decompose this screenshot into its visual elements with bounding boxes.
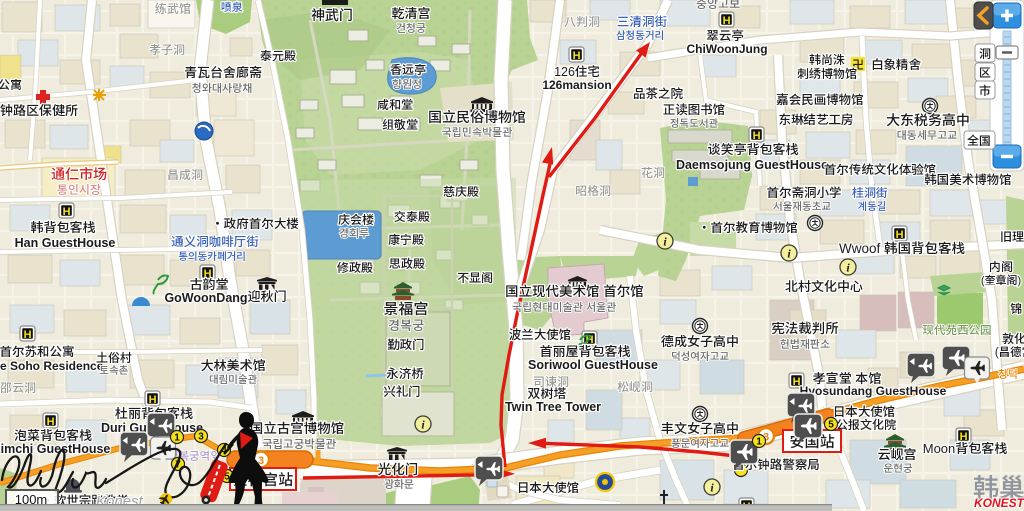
svg-text:e Soho Residence: e Soho Residence	[0, 359, 104, 373]
svg-text:韩背包客栈: 韩背包客栈	[30, 217, 95, 236]
svg-text:중앙고보: 중앙고보	[696, 0, 740, 12]
svg-text:刺绣博物馆: 刺绣博物馆	[797, 65, 857, 82]
svg-text:韩国美术博物馆: 韩国美术博物馆	[924, 169, 1012, 188]
svg-text:KONEST: KONEST	[974, 496, 1024, 510]
svg-text:Moon背包客栈: Moon背包客栈	[923, 438, 1008, 457]
svg-text:波兰大使馆: 波兰大使馆	[509, 324, 572, 343]
svg-text:(奎章阁): (奎章阁)	[981, 272, 1021, 288]
svg-text:청와대사랑채: 청와대사랑채	[192, 80, 253, 96]
svg-text:昌成洞: 昌成洞	[167, 166, 203, 183]
svg-text:계동길: 계동길	[858, 199, 887, 214]
svg-text:咸和堂: 咸和堂	[377, 96, 413, 113]
svg-text:德成女子高中: 德成女子高中	[661, 331, 739, 350]
svg-text:洞: 洞	[979, 45, 991, 62]
svg-text:GoWoonDang: GoWoonDang	[164, 291, 247, 305]
svg-text:日本大使馆: 日本大使馆	[517, 477, 580, 496]
svg-text:5: 5	[828, 420, 834, 431]
svg-text:(昌德宫: (昌德宫	[995, 344, 1024, 360]
svg-text:不显阁: 不显阁	[457, 269, 493, 286]
svg-text:八判洞: 八判洞	[564, 13, 600, 30]
svg-text:国立现代美术馆 首尔馆: 国立现代美术馆 首尔馆	[505, 280, 644, 300]
svg-text:邵云洞: 邵云洞	[0, 379, 36, 396]
svg-text:Han GuestHouse: Han GuestHouse	[15, 236, 116, 250]
svg-text:국립고궁박물관: 국립고궁박물관	[262, 436, 336, 452]
svg-text:思政殿: 思政殿	[389, 255, 426, 272]
svg-text:·政府首尔大楼: ·政府首尔大楼	[211, 213, 299, 232]
svg-text:3: 3	[198, 432, 204, 443]
svg-text:宪法裁判所: 宪法裁判所	[771, 317, 839, 337]
svg-text:126mansion: 126mansion	[542, 78, 611, 92]
svg-text:丰文女子高中: 丰文女子高中	[661, 418, 739, 437]
svg-text:白象精舍: 白象精舍	[871, 54, 922, 73]
svg-text:Hyosundang GuestHouse: Hyosundang GuestHouse	[800, 384, 947, 398]
svg-text:组敬堂: 组敬堂	[382, 116, 418, 133]
svg-text:통인시장: 통인시장	[57, 181, 101, 198]
svg-text:삼청동거리: 삼청동거리	[616, 28, 664, 43]
svg-text:市: 市	[979, 82, 991, 99]
svg-text:풍문여자고교: 풍문여자고교	[671, 436, 729, 451]
svg-text:神武门: 神武门	[311, 5, 353, 25]
svg-text:兴礼门: 兴礼门	[383, 381, 421, 400]
svg-text:首尔传统文化体验馆: 首尔传统文化体验馆	[824, 159, 937, 178]
svg-text:대동세무고교: 대동세무고교	[897, 127, 958, 143]
svg-text:锦: 锦	[1010, 300, 1022, 317]
svg-text:昭格洞: 昭格洞	[575, 182, 611, 199]
svg-text:경복궁: 경복궁	[388, 315, 424, 334]
svg-text:东琳结艺工房: 东琳结艺工房	[778, 109, 853, 128]
svg-text:松岘洞: 松岘洞	[617, 378, 653, 395]
svg-text:勤政门: 勤政门	[387, 334, 425, 353]
svg-text:修政殿: 修政殿	[337, 259, 374, 276]
svg-text:现代苑西公园: 现代苑西公园	[923, 322, 992, 338]
svg-text:국립민속박물관: 국립민속박물관	[442, 124, 513, 140]
svg-text:永济桥: 永济桥	[386, 363, 424, 382]
svg-text:1: 1	[174, 433, 180, 444]
svg-text:区: 区	[979, 64, 991, 81]
svg-text:孝子洞: 孝子洞	[149, 41, 185, 58]
svg-text:青瓦台舍廊斋: 青瓦台舍廊斋	[184, 62, 262, 81]
svg-text:Twin Tree Tower: Twin Tree Tower	[505, 400, 601, 414]
svg-text:ChiWoonJung: ChiWoonJung	[686, 42, 767, 56]
svg-text:운현궁: 운현궁	[884, 461, 913, 476]
svg-text:谈笑亭背包客栈: 谈笑亭背包客栈	[707, 139, 798, 158]
svg-text:交泰殿: 交泰殿	[394, 208, 431, 225]
svg-text:향원정: 향원정	[392, 76, 422, 92]
svg-text:光化门: 光化门	[378, 458, 419, 478]
svg-text:Kimchi GuestHouse: Kimchi GuestHouse	[0, 442, 110, 456]
svg-text:全国: 全国	[966, 132, 991, 149]
svg-text:정독도서관: 정독도서관	[670, 116, 719, 131]
svg-text:喷泉: 喷泉	[221, 0, 244, 15]
svg-text:国立古宫博物馆: 国立古宫博物馆	[250, 417, 345, 437]
svg-text:通义洞咖啡厅街: 通义洞咖啡厅街	[171, 231, 259, 250]
svg-text:국립현대미술관 서울관: 국립현대미술관 서울관	[512, 299, 616, 315]
svg-text:泰元殿: 泰元殿	[259, 47, 297, 64]
svg-text:건청궁: 건청궁	[396, 20, 426, 36]
svg-text:광화문: 광화문	[384, 476, 414, 492]
svg-text:·首尔教育博物馆: ·首尔教育博物馆	[698, 217, 798, 236]
svg-text:司谏洞: 司谏洞	[533, 373, 569, 390]
svg-text:통의동카페거리: 통의동카페거리	[178, 249, 246, 264]
svg-text:경회루: 경회루	[339, 225, 369, 241]
svg-text:토속촌: 토속촌	[100, 363, 129, 378]
svg-text:慈庆殿: 慈庆殿	[443, 183, 480, 200]
svg-text:헌법재판소: 헌법재판소	[780, 336, 831, 352]
svg-text:钟路区保健所: 钟路区保健所	[0, 100, 78, 119]
svg-text:嘉会民画博物馆: 嘉会民画博物馆	[776, 89, 864, 108]
svg-text:Soriwool GuestHouse: Soriwool GuestHouse	[528, 358, 658, 372]
svg-text:迎秋门: 迎秋门	[247, 286, 286, 305]
svg-text:旧理: 旧理	[1000, 228, 1024, 245]
svg-text:花洞: 花洞	[641, 164, 665, 181]
svg-text:대림미술관: 대림미술관	[209, 372, 258, 387]
svg-text:公寓: 公寓	[0, 76, 22, 93]
svg-text:창덕: 창덕	[998, 366, 1018, 382]
svg-text:서울재동초교: 서울재동초교	[773, 199, 831, 214]
svg-text:덕성여자고교: 덕성여자고교	[671, 349, 729, 364]
svg-text:Daemsojung GuestHouse: Daemsojung GuestHouse	[676, 158, 828, 172]
svg-text:北村文化中心: 北村文化中心	[785, 276, 863, 295]
svg-text:首尔苏和公寓: 首尔苏和公寓	[0, 341, 75, 360]
svg-text:1: 1	[756, 437, 762, 448]
svg-text:公报文化院: 公报文化院	[836, 416, 897, 433]
svg-text:Wwoof 韩国背包客栈: Wwoof 韩国背包客栈	[839, 237, 966, 257]
svg-text:康宁殿: 康宁殿	[388, 231, 425, 248]
svg-text:练武馆: 练武馆	[155, 0, 191, 17]
